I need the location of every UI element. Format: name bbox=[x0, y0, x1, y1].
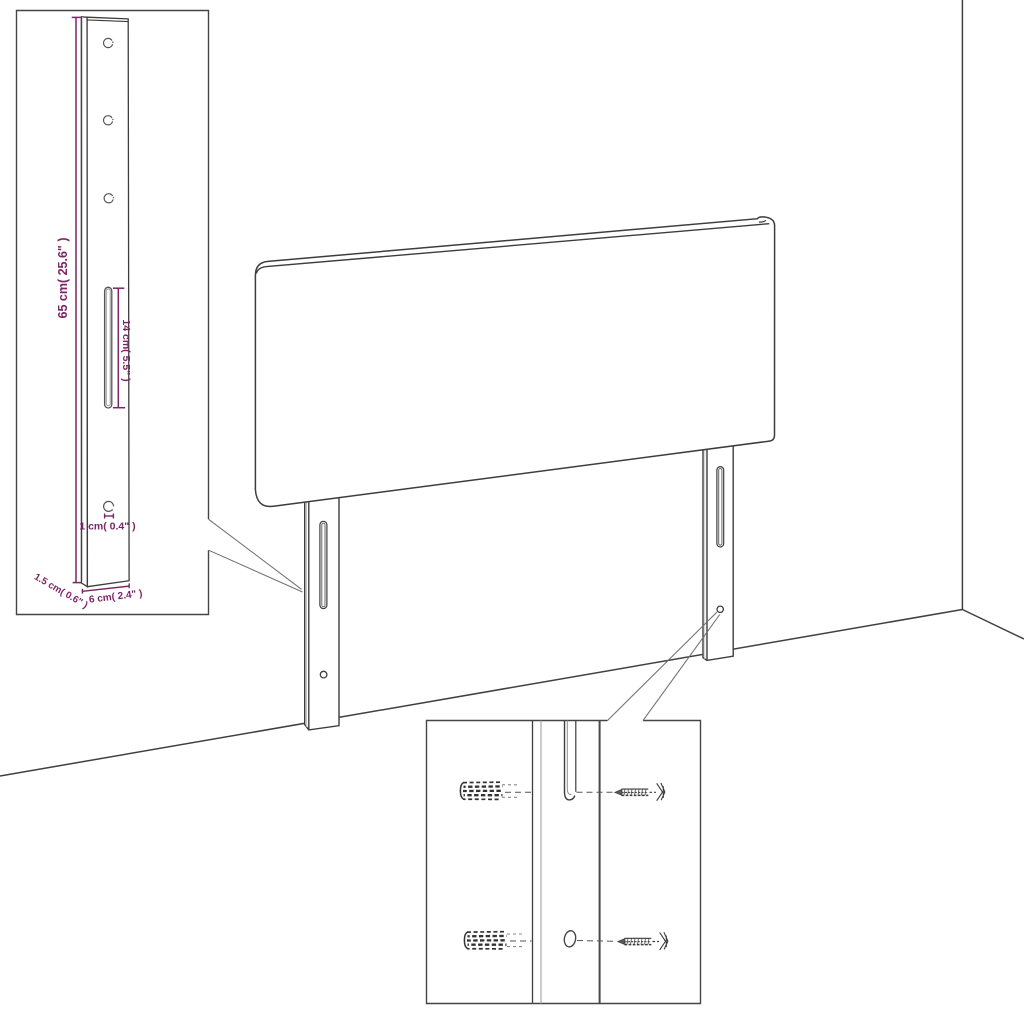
svg-text:65 cm( 25.6" ): 65 cm( 25.6" ) bbox=[56, 238, 70, 319]
svg-text:6 cm( 2.4" ): 6 cm( 2.4" ) bbox=[88, 588, 143, 605]
svg-text:1 cm( 0.4" ): 1 cm( 0.4" ) bbox=[79, 521, 135, 533]
svg-text:14 cm( 5.5" ): 14 cm( 5.5" ) bbox=[120, 319, 132, 381]
